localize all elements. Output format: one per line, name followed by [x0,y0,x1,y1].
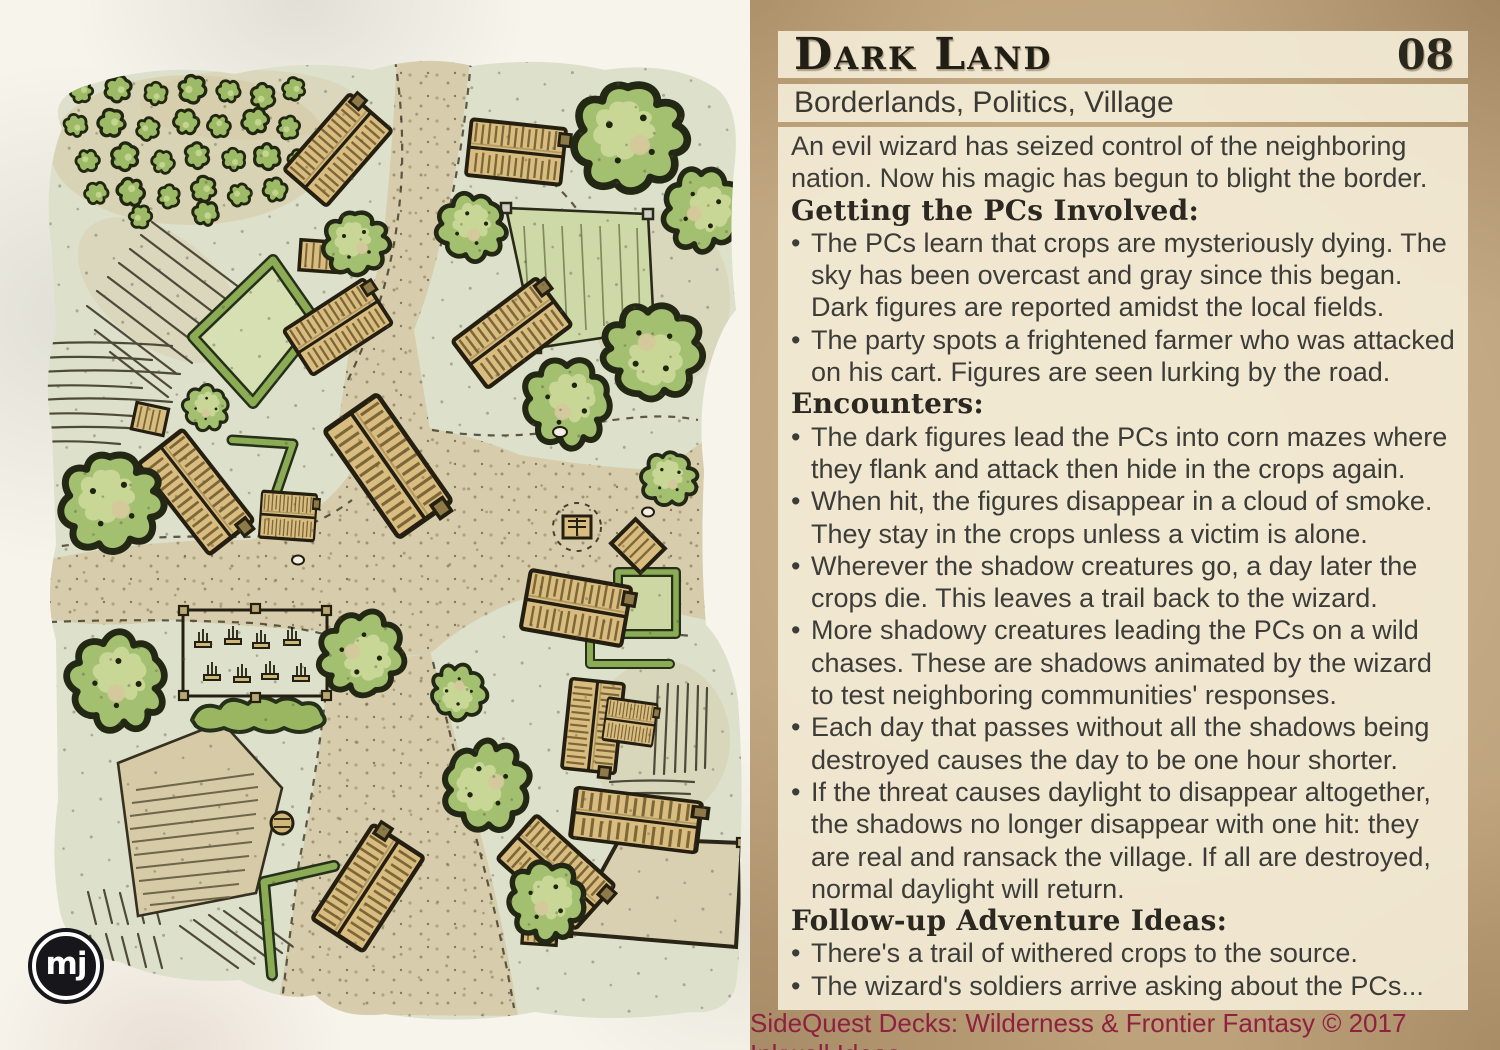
publisher-logo-text: mj [46,946,87,982]
section-heading: Follow-up Adventure Ideas: [791,905,1456,937]
bullet-item: •The party spots a frightened farmer who… [791,324,1456,389]
card-panel: Dark Land 08 Borderlands, Politics, Vill… [750,0,1500,1050]
card-tags: Borderlands, Politics, Village [778,84,1468,122]
bullet-item: •There's a trail of withered crops to th… [791,937,1456,969]
map-panel: mj [0,0,750,1050]
publisher-logo-ring: mj [32,932,100,1000]
bullet-marker: • [791,227,803,324]
bullet-marker: • [791,324,803,389]
bullet-text: The wizard's soldiers arrive asking abou… [811,970,1456,1002]
bullet-marker: • [791,776,803,905]
bullet-marker: • [791,550,803,615]
card-footer: SideQuest Decks: Wilderness & Frontier F… [750,1008,1465,1050]
bullet-marker: • [791,485,803,550]
bullet-item: •Each day that passes without all the sh… [791,711,1456,776]
bullet-text: The party spots a frightened farmer who … [811,324,1456,389]
section-heading: Getting the PCs Involved: [791,195,1456,227]
bullet-text: Each day that passes without all the sha… [811,711,1456,776]
bullet-marker: • [791,937,803,969]
bullet-item: •More shadowy creatures leading the PCs … [791,614,1456,711]
bullet-marker: • [791,711,803,776]
bullet-item: •If the threat causes daylight to disapp… [791,776,1456,905]
map-stipple-texture [48,61,742,1020]
bullet-marker: • [791,421,803,486]
bullet-item: •The wizard's soldiers arrive asking abo… [791,970,1456,1002]
paragraph: An evil wizard has seized control of the… [791,130,1456,195]
bullet-item: •Wherever the shadow creatures go, a day… [791,550,1456,615]
card-screenshot: mj Dark Land 08 Borderlands, Politics, V… [0,0,1500,1050]
section-heading: Encounters: [791,388,1456,420]
bullet-text: More shadowy creatures leading the PCs o… [811,614,1456,711]
bullet-text: If the threat causes daylight to disappe… [811,776,1456,905]
bullet-item: •When hit, the figures disappear in a cl… [791,485,1456,550]
card-header: Dark Land 08 [778,31,1468,78]
bullet-text: The PCs learn that crops are mysteriousl… [811,227,1456,324]
bullet-marker: • [791,970,803,1002]
bullet-text: Wherever the shadow creatures go, a day … [811,550,1456,615]
card-number: 08 [1397,31,1454,79]
bullet-item: •The dark figures lead the PCs into corn… [791,421,1456,486]
bullet-text: The dark figures lead the PCs into corn … [811,421,1456,486]
bullet-marker: • [791,614,803,711]
bullet-item: •The PCs learn that crops are mysterious… [791,227,1456,324]
card-body: An evil wizard has seized control of the… [778,127,1468,1010]
card-title: Dark Land [794,29,1052,80]
bullet-text: There's a trail of withered crops to the… [811,937,1456,969]
village-map-illustration [0,0,750,1050]
publisher-logo: mj [28,928,104,1004]
bullet-text: When hit, the figures disappear in a clo… [811,485,1456,550]
